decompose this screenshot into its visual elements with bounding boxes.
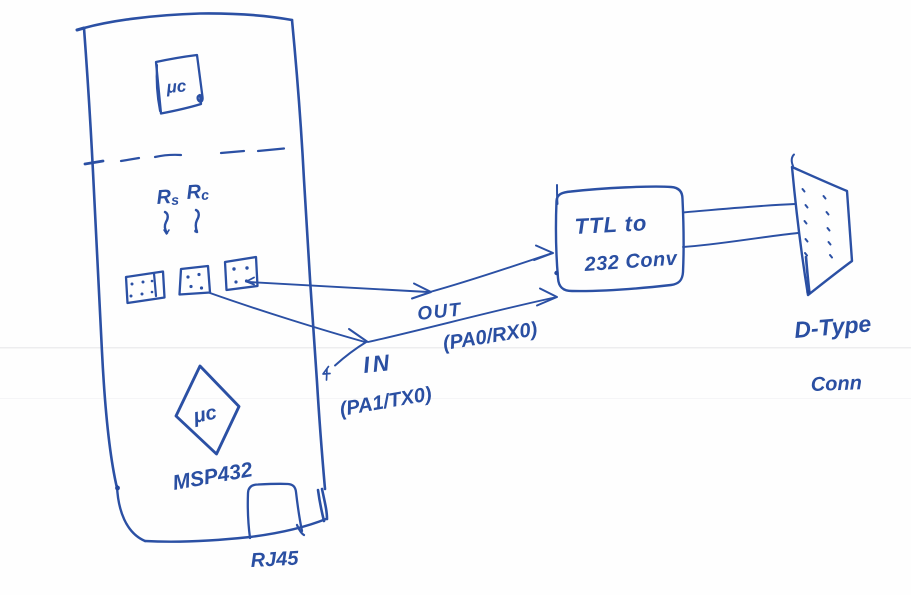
svg-text:232 Conv: 232 Conv (583, 247, 680, 276)
svg-text:Rs: Rs (156, 185, 180, 209)
svg-text:Conn: Conn (810, 372, 862, 396)
svg-text:D-Type: D-Type (793, 310, 872, 343)
svg-text:RJ45: RJ45 (250, 547, 300, 572)
svg-text:IN: IN (362, 349, 394, 378)
svg-text:TTL to: TTL to (574, 210, 648, 239)
svg-text:μc: μc (165, 76, 188, 97)
svg-text:Rc: Rc (186, 180, 210, 204)
svg-text:(PA0/RX0): (PA0/RX0) (441, 318, 539, 355)
svg-text:(PA1/TX0): (PA1/TX0) (338, 383, 434, 421)
svg-text:μc: μc (190, 402, 218, 429)
svg-text:MSP432: MSP432 (171, 458, 255, 495)
